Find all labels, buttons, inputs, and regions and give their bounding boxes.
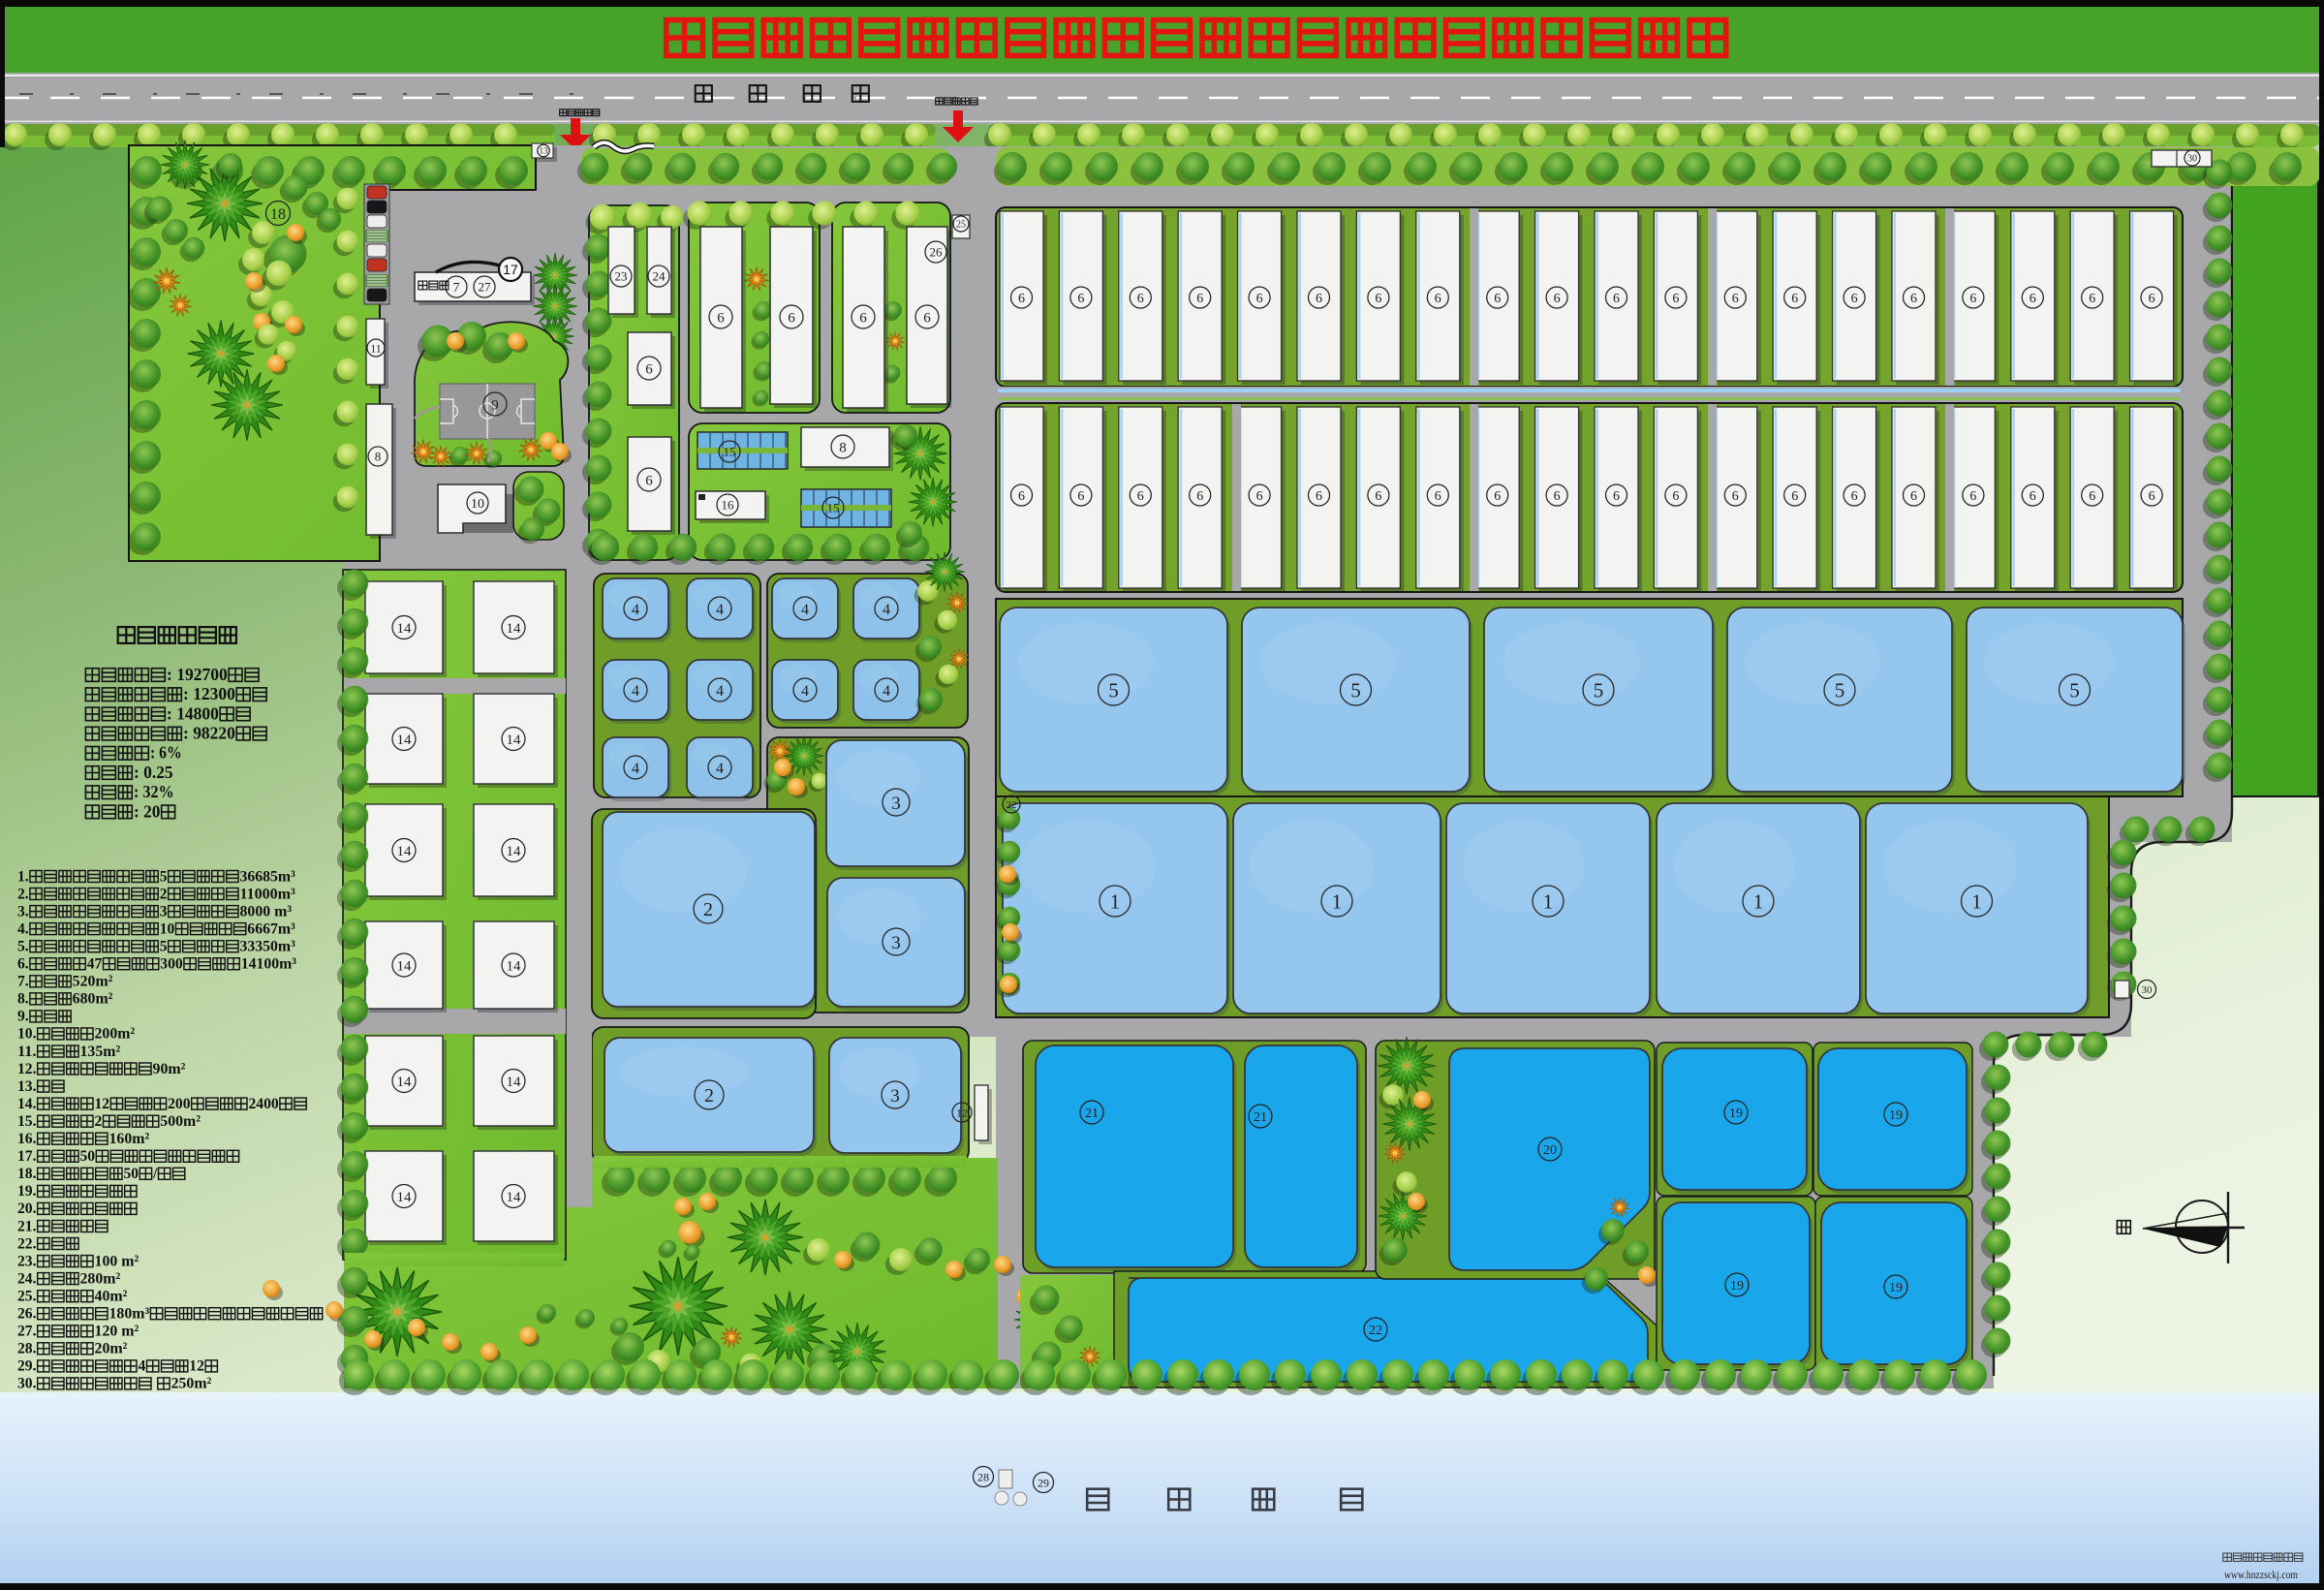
svg-text:5: 5 <box>160 868 168 885</box>
svg-text:23.: 23. <box>17 1253 37 1269</box>
svg-text:280m²: 280m² <box>80 1270 121 1287</box>
svg-text:6: 6 <box>1018 489 1025 504</box>
svg-text:120 m²: 120 m² <box>95 1324 139 1340</box>
svg-text:6: 6 <box>1256 489 1263 504</box>
svg-text:4: 4 <box>632 602 639 618</box>
svg-text:6: 6 <box>1969 292 1976 306</box>
svg-text:5: 5 <box>1350 679 1361 702</box>
svg-text:8: 8 <box>375 450 382 464</box>
svg-text:20m²: 20m² <box>95 1341 128 1357</box>
svg-text:6: 6 <box>2030 489 2036 504</box>
svg-text:6: 6 <box>1732 489 1739 504</box>
svg-text:2: 2 <box>703 899 713 920</box>
svg-text:14100m³: 14100m³ <box>241 956 297 973</box>
svg-text:8: 8 <box>839 440 847 455</box>
svg-text:14: 14 <box>507 1075 522 1090</box>
svg-text:14: 14 <box>507 621 522 637</box>
svg-text:6: 6 <box>1910 489 1917 504</box>
svg-text:6: 6 <box>1851 292 1858 306</box>
svg-text:21: 21 <box>1254 1110 1267 1125</box>
svg-text:3: 3 <box>891 794 901 814</box>
svg-text:14: 14 <box>397 1190 413 1205</box>
svg-text:2: 2 <box>95 1113 103 1130</box>
svg-text:4: 4 <box>883 602 890 618</box>
svg-text:13: 13 <box>540 146 549 156</box>
svg-text:23: 23 <box>615 269 628 284</box>
svg-text:6: 6 <box>1791 292 1798 306</box>
svg-text:520m²: 520m² <box>73 974 113 990</box>
svg-text:6: 6 <box>788 310 795 326</box>
svg-text:6: 6 <box>2030 292 2036 306</box>
svg-text:: 12300: : 12300 <box>183 684 235 703</box>
svg-text:5.: 5. <box>17 939 29 955</box>
svg-text:200m²: 200m² <box>95 1026 136 1043</box>
svg-text:19: 19 <box>1889 1108 1903 1123</box>
svg-text:6: 6 <box>923 310 931 326</box>
svg-text:200: 200 <box>168 1096 190 1112</box>
svg-text:/: / <box>152 1166 158 1182</box>
svg-text:6: 6 <box>645 361 653 377</box>
svg-text:14: 14 <box>507 733 522 748</box>
svg-text:30: 30 <box>2142 984 2154 996</box>
svg-text:24: 24 <box>653 269 666 284</box>
svg-text:6: 6 <box>1554 292 1561 306</box>
svg-text:6: 6 <box>2149 489 2155 504</box>
svg-text:135m²: 135m² <box>80 1044 121 1060</box>
svg-text:26: 26 <box>930 245 944 260</box>
svg-text:5: 5 <box>1108 679 1119 702</box>
svg-text:36685m³: 36685m³ <box>240 868 296 885</box>
svg-text:14: 14 <box>397 1075 413 1090</box>
svg-text:19.: 19. <box>17 1183 37 1200</box>
svg-text:8.: 8. <box>17 991 29 1008</box>
svg-text:14: 14 <box>507 958 522 974</box>
svg-text:25: 25 <box>956 220 966 231</box>
svg-text:14: 14 <box>507 1190 522 1205</box>
svg-text:1: 1 <box>1543 890 1554 914</box>
svg-text:3: 3 <box>890 1086 900 1107</box>
svg-text:1: 1 <box>1110 890 1121 914</box>
svg-text:6: 6 <box>1077 489 1084 504</box>
svg-text:50: 50 <box>124 1166 139 1182</box>
svg-text:11.: 11. <box>17 1044 37 1060</box>
svg-text:15.: 15. <box>17 1113 37 1130</box>
svg-text:500m²: 500m² <box>160 1113 201 1130</box>
svg-text:27.: 27. <box>17 1324 37 1340</box>
svg-text:6: 6 <box>1554 489 1561 504</box>
svg-text:8000 m³: 8000 m³ <box>240 903 293 920</box>
svg-text:15: 15 <box>827 501 840 515</box>
svg-text:47: 47 <box>87 956 103 973</box>
svg-text:21.: 21. <box>17 1218 37 1234</box>
svg-text:6: 6 <box>1613 489 1620 504</box>
svg-text:6: 6 <box>1494 489 1501 504</box>
svg-text:6: 6 <box>1316 489 1322 504</box>
svg-text:3.: 3. <box>17 903 29 920</box>
svg-text:6667m³: 6667m³ <box>247 920 295 937</box>
svg-text:22: 22 <box>1369 1324 1382 1338</box>
svg-text:: 192700: : 192700 <box>167 665 228 684</box>
svg-text:24.: 24. <box>17 1270 37 1287</box>
svg-text:4.: 4. <box>17 920 29 937</box>
svg-text:6: 6 <box>1613 292 1620 306</box>
svg-text:6: 6 <box>1732 292 1739 306</box>
svg-text:4: 4 <box>716 683 724 700</box>
svg-text:160m²: 160m² <box>109 1131 150 1147</box>
svg-text:22: 22 <box>1007 799 1017 811</box>
svg-text:6: 6 <box>1910 292 1917 306</box>
svg-text:4: 4 <box>632 683 639 700</box>
svg-text:www.hnzzsckj.com: www.hnzzsckj.com <box>2224 1568 2299 1581</box>
svg-text:25.: 25. <box>17 1289 37 1305</box>
svg-text:14: 14 <box>507 844 522 859</box>
svg-text:20: 20 <box>1543 1143 1557 1158</box>
svg-text:17: 17 <box>503 262 518 277</box>
svg-text:180m³: 180m³ <box>109 1306 150 1323</box>
svg-text:6: 6 <box>645 473 653 488</box>
svg-text:100 m²: 100 m² <box>95 1253 139 1269</box>
svg-text:21: 21 <box>1085 1107 1099 1121</box>
svg-text:13.: 13. <box>17 1078 37 1095</box>
svg-text:: 32%: : 32% <box>134 782 174 801</box>
svg-text:50: 50 <box>80 1148 96 1165</box>
svg-text:4: 4 <box>632 761 639 777</box>
svg-text:11: 11 <box>370 341 382 355</box>
svg-text:6: 6 <box>1137 292 1144 306</box>
svg-text:6: 6 <box>2089 489 2095 504</box>
svg-text:4: 4 <box>883 683 890 700</box>
svg-text:6: 6 <box>1435 489 1441 504</box>
svg-text:12: 12 <box>956 1106 968 1119</box>
svg-text:6: 6 <box>1672 489 1679 504</box>
svg-text:14: 14 <box>397 844 413 859</box>
svg-text:10.: 10. <box>17 1026 37 1043</box>
svg-text:6: 6 <box>1196 292 1203 306</box>
svg-text:1.: 1. <box>17 868 29 885</box>
svg-text:2: 2 <box>704 1085 714 1107</box>
svg-text:6: 6 <box>1256 292 1263 306</box>
svg-text:6: 6 <box>1375 292 1381 306</box>
svg-text:6: 6 <box>1494 292 1501 306</box>
svg-text:22.: 22. <box>17 1235 37 1252</box>
svg-text:6: 6 <box>1791 489 1798 504</box>
svg-text:9: 9 <box>491 397 499 413</box>
svg-text:33350m³: 33350m³ <box>240 939 296 955</box>
svg-text:30: 30 <box>2187 154 2197 165</box>
svg-text:3: 3 <box>160 903 168 920</box>
svg-text:19: 19 <box>1729 1107 1743 1121</box>
svg-text:6: 6 <box>1196 489 1203 504</box>
svg-text:20.: 20. <box>17 1200 37 1217</box>
svg-text:26.: 26. <box>17 1306 37 1323</box>
svg-text:28.: 28. <box>17 1341 37 1357</box>
svg-text:4: 4 <box>716 602 724 618</box>
svg-text:6: 6 <box>1018 292 1025 306</box>
svg-text:12: 12 <box>95 1096 110 1112</box>
svg-text:680m²: 680m² <box>73 991 113 1008</box>
svg-text:17.: 17. <box>17 1148 37 1165</box>
svg-text:1: 1 <box>1332 890 1343 914</box>
svg-text:27: 27 <box>479 280 492 295</box>
svg-text:29.: 29. <box>17 1358 37 1375</box>
svg-text:1: 1 <box>1971 890 1982 914</box>
svg-text:: 20: : 20 <box>134 801 160 821</box>
svg-text:7: 7 <box>453 281 460 296</box>
svg-text:6: 6 <box>1375 489 1381 504</box>
svg-text:6: 6 <box>1077 292 1084 306</box>
svg-text:1: 1 <box>1753 890 1764 914</box>
svg-text:5: 5 <box>2069 679 2080 702</box>
svg-text:: 0.25: : 0.25 <box>134 763 173 782</box>
svg-text:6: 6 <box>1137 489 1144 504</box>
svg-text:6: 6 <box>1969 489 1976 504</box>
svg-text:6: 6 <box>2149 292 2155 306</box>
svg-text:9.: 9. <box>17 1009 29 1025</box>
svg-text:10: 10 <box>471 497 484 512</box>
svg-text:19: 19 <box>1730 1279 1744 1294</box>
svg-text:10: 10 <box>160 920 175 937</box>
svg-text:6: 6 <box>859 310 867 326</box>
svg-text:6: 6 <box>2089 292 2095 306</box>
svg-text:12: 12 <box>189 1358 204 1375</box>
svg-text:2.: 2. <box>17 886 29 902</box>
svg-text:2400: 2400 <box>249 1096 279 1112</box>
svg-text:19: 19 <box>1889 1281 1903 1295</box>
svg-text:14.: 14. <box>17 1096 37 1112</box>
svg-text:5: 5 <box>1594 679 1604 702</box>
svg-text:4: 4 <box>139 1358 146 1375</box>
svg-text:6: 6 <box>1672 292 1679 306</box>
svg-text:6.: 6. <box>17 956 29 973</box>
svg-text:3: 3 <box>891 933 901 953</box>
svg-text:40m²: 40m² <box>95 1289 128 1305</box>
svg-text:18.: 18. <box>17 1166 37 1182</box>
svg-text:16: 16 <box>722 498 735 513</box>
svg-text:14: 14 <box>397 733 413 748</box>
svg-text:90m²: 90m² <box>153 1061 186 1077</box>
svg-text:6: 6 <box>1316 292 1322 306</box>
svg-text:4: 4 <box>801 602 809 618</box>
svg-text:5: 5 <box>160 939 168 955</box>
svg-text:6: 6 <box>1851 489 1858 504</box>
svg-text:2: 2 <box>160 886 168 902</box>
svg-text:12.: 12. <box>17 1061 37 1077</box>
svg-text:30.: 30. <box>17 1376 37 1392</box>
svg-text:18: 18 <box>270 206 286 223</box>
svg-text:4: 4 <box>801 683 809 700</box>
svg-text:5: 5 <box>1835 679 1845 702</box>
svg-text:15: 15 <box>724 445 736 459</box>
svg-text:: 14800: : 14800 <box>167 703 219 723</box>
svg-text:: 98220: : 98220 <box>183 724 235 743</box>
svg-text:4: 4 <box>716 761 724 777</box>
svg-text:300: 300 <box>160 956 182 973</box>
svg-text:: 6%: : 6% <box>150 743 182 763</box>
svg-text:14: 14 <box>397 958 413 974</box>
svg-text:7.: 7. <box>17 974 29 990</box>
svg-text:28: 28 <box>977 1470 989 1483</box>
svg-text:6: 6 <box>1435 292 1441 306</box>
svg-text:14: 14 <box>397 621 413 637</box>
svg-text:250m²: 250m² <box>171 1376 212 1392</box>
svg-text:16.: 16. <box>17 1131 37 1147</box>
svg-text:29: 29 <box>1038 1476 1049 1489</box>
svg-text:11000m³: 11000m³ <box>240 886 296 902</box>
svg-text:6: 6 <box>717 310 725 326</box>
